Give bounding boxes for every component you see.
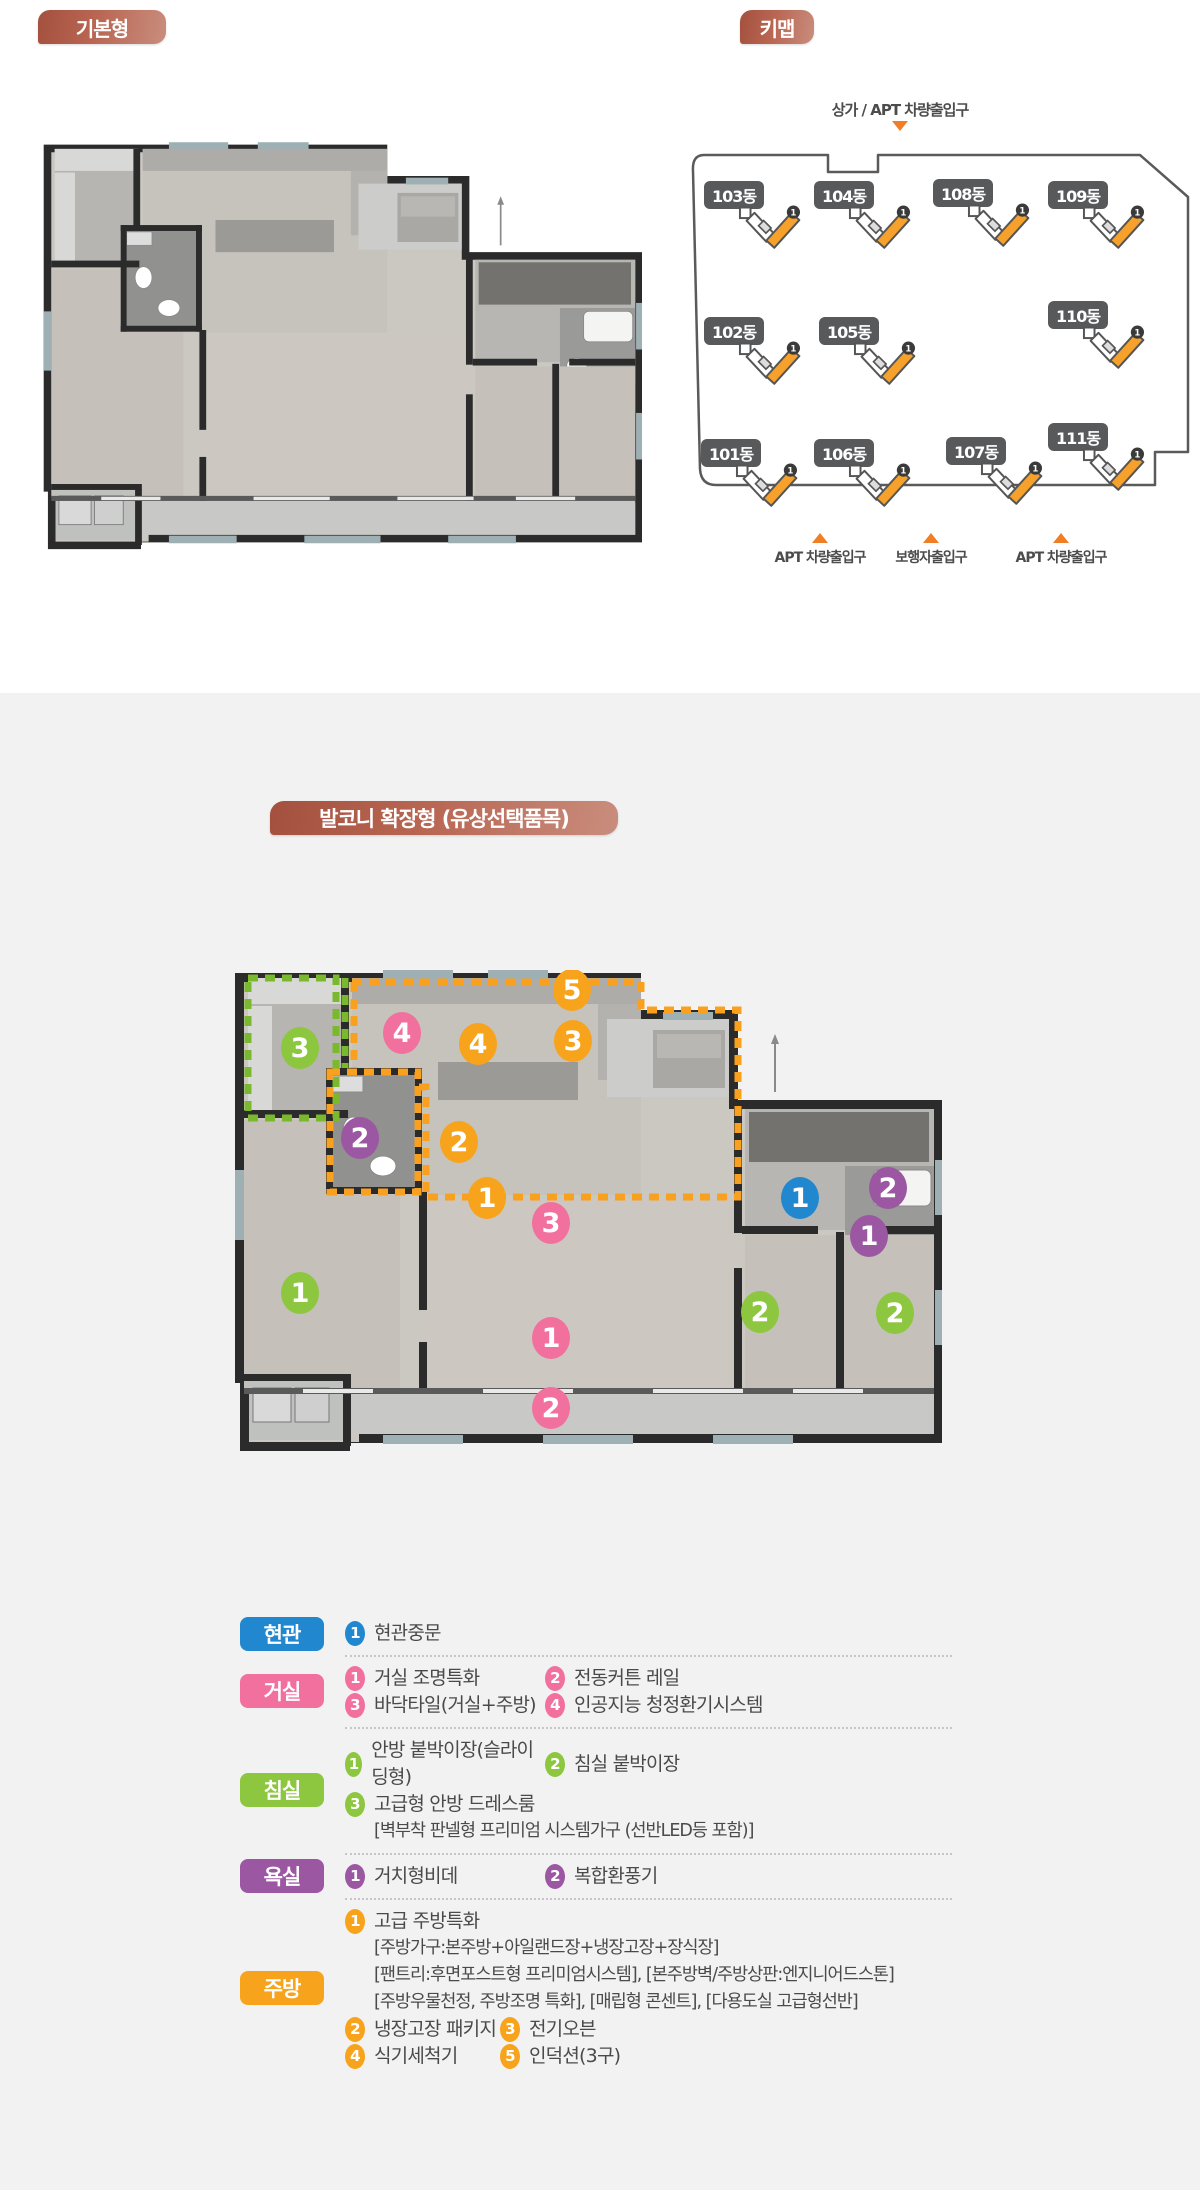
option-marker-pink-1: 1 (532, 1317, 570, 1359)
item-number-icon: 2 (545, 1864, 565, 1889)
basic-floor-plan (42, 142, 642, 555)
basic-floor-plan-drawing (42, 142, 642, 551)
svg-text:2: 2 (542, 1393, 561, 1424)
svg-text:1: 1 (542, 1323, 561, 1354)
legend-note: [주방가구:본주방+아일랜드장+냉장고장+장식장] (345, 1935, 718, 1962)
gate-arrow-up-icon (812, 533, 828, 543)
item-number-icon: 1 (345, 1666, 365, 1691)
category-badge-hyeongwan: 현관 (240, 1617, 324, 1651)
option-marker-pink-2: 2 (532, 1387, 570, 1429)
legend-section-chimsil: 침실1안방 붙박이장(슬라이딩형)2침실 붙박이장3고급형 안방 드레스룸[벽부… (240, 1727, 952, 1853)
item-number-icon: 3 (345, 1792, 365, 1817)
svg-text:4: 4 (393, 1018, 412, 1049)
building-106동: 106동 (814, 439, 924, 529)
gate-arrow-up-icon (923, 533, 939, 543)
svg-text:1: 1 (791, 1183, 810, 1214)
building-shape-icon (1080, 193, 1146, 259)
legend-item: 2복합환풍기 (545, 1863, 657, 1890)
item-text: 복합환풍기 (574, 1863, 657, 1890)
building-shape-icon (965, 191, 1031, 257)
option-marker-green-2: 2 (876, 1292, 914, 1334)
legend-note: [팬트리:후면포스트형 프리미엄시스템], [본주방벽/주방상판:엔지니어드스톤… (345, 1962, 894, 1989)
building-shape-icon (736, 193, 802, 259)
item-number-icon: 1 (345, 1864, 365, 1889)
item-text: 바닥타일(거실+주방) (374, 1692, 536, 1719)
item-number-icon: 4 (345, 2044, 365, 2069)
gate-arrow-up-icon (1053, 533, 1069, 543)
legend-item: 1현관중문 (345, 1620, 441, 1647)
building-104동: 104동 (814, 181, 924, 271)
building-shape-icon (1080, 313, 1146, 379)
legend-item: 4식기세척기 (345, 2043, 500, 2070)
legend-item: 1거실 조명특화 (345, 1665, 545, 1692)
option-marker-purple-2: 2 (341, 1117, 379, 1159)
option-marker-green-2: 2 (741, 1291, 779, 1333)
item-number-icon: 2 (545, 1752, 565, 1777)
building-111동: 111동 (1048, 423, 1158, 513)
legend-section-geosil: 거실1거실 조명특화2전동커튼 레일3바닥타일(거실+주방)4인공지능 청정환기… (240, 1655, 952, 1727)
legend-item: 5인덕션(3구) (500, 2043, 620, 2070)
item-number-icon: 1 (345, 1752, 362, 1777)
legend-item: 2침실 붙박이장 (545, 1751, 679, 1778)
legend-item: 2냉장고장 패키지 (345, 2016, 500, 2043)
item-text: 고급형 안방 드레스룸 (374, 1791, 535, 1818)
svg-text:2: 2 (751, 1297, 770, 1328)
building-shape-icon (846, 451, 912, 517)
svg-text:1: 1 (478, 1183, 497, 1214)
svg-text:5: 5 (563, 975, 582, 1006)
site-keymap: 상가 / APT 차량출입구 103동104동108동109동102동105동1… (688, 95, 1192, 573)
item-text: 거치형비데 (374, 1863, 457, 1890)
options-legend: 현관1현관중문거실1거실 조명특화2전동커튼 레일3바닥타일(거실+주방)4인공… (240, 1612, 952, 2078)
legend-item: 3고급형 안방 드레스룸 (345, 1791, 535, 1818)
building-shape-icon (1080, 435, 1146, 501)
building-shape-icon (733, 451, 799, 517)
item-text: 침실 붙박이장 (574, 1751, 679, 1778)
svg-text:4: 4 (469, 1029, 488, 1060)
item-number-icon: 3 (345, 1693, 365, 1718)
category-badge-yoksil: 욕실 (240, 1859, 324, 1893)
legend-note: [벽부착 판넬형 프리미엄 시스템가구 (선반LED등 포함)] (345, 1818, 753, 1845)
svg-text:2: 2 (351, 1123, 370, 1154)
option-marker-orange-2: 2 (440, 1121, 478, 1163)
building-103동: 103동 (704, 181, 814, 271)
category-badge-jubang: 주방 (240, 1971, 324, 2005)
svg-text:3: 3 (564, 1026, 583, 1057)
basic-type-badge: 기본형 (38, 10, 166, 44)
legend-item: 3바닥타일(거실+주방) (345, 1692, 545, 1719)
svg-text:2: 2 (879, 1173, 898, 1204)
building-110동: 110동 (1048, 301, 1158, 391)
legend-item: 1거치형비데 (345, 1863, 545, 1890)
item-number-icon: 1 (345, 1621, 365, 1646)
option-marker-orange-4: 4 (459, 1023, 497, 1065)
option-marker-orange-5: 5 (553, 970, 591, 1011)
item-text: 거실 조명특화 (374, 1665, 479, 1692)
svg-text:2: 2 (886, 1298, 905, 1329)
item-text: 인덕션(3구) (529, 2043, 620, 2070)
svg-text:3: 3 (291, 1033, 310, 1064)
building-105동: 105동 (819, 317, 929, 407)
legend-section-yoksil: 욕실1거치형비데2복합환풍기 (240, 1853, 952, 1898)
building-shape-icon (736, 329, 802, 395)
legend-item: 1고급 주방특화 (345, 1908, 479, 1935)
option-marker-pink-3: 3 (532, 1202, 570, 1244)
extension-floor-plan-drawing: 54433221312112212 (233, 970, 942, 1453)
building-107동: 107동 (946, 437, 1056, 527)
item-text: 인공지능 청정환기시스템 (574, 1692, 763, 1719)
gate-label: APT 차량출입구 (991, 547, 1131, 567)
building-shape-icon (851, 329, 917, 395)
item-text: 현관중문 (374, 1620, 441, 1647)
building-102동: 102동 (704, 317, 814, 407)
option-marker-pink-4: 4 (383, 1012, 421, 1054)
legend-section-hyeongwan: 현관1현관중문 (240, 1612, 952, 1655)
svg-text:3: 3 (542, 1208, 561, 1239)
legend-item: 4인공지능 청정환기시스템 (545, 1692, 763, 1719)
legend-item: 1안방 붙박이장(슬라이딩형) (345, 1737, 545, 1791)
option-marker-purple-2: 2 (869, 1167, 907, 1209)
svg-text:2: 2 (450, 1127, 469, 1158)
svg-text:1: 1 (291, 1278, 310, 1309)
item-text: 식기세척기 (374, 2043, 457, 2070)
item-text: 전기오븐 (529, 2016, 596, 2043)
item-number-icon: 2 (345, 2017, 365, 2042)
balcony-extension-badge: 발코니 확장형 (유상선택품목) (270, 801, 618, 835)
building-shape-icon (978, 449, 1044, 515)
building-shape-icon (846, 193, 912, 259)
item-number-icon: 3 (500, 2017, 520, 2042)
item-number-icon: 5 (500, 2044, 520, 2069)
option-marker-purple-1: 1 (850, 1215, 888, 1257)
legend-item: 2전동커튼 레일 (545, 1665, 679, 1692)
item-text: 안방 붙박이장(슬라이딩형) (371, 1737, 545, 1791)
option-marker-green-1: 1 (281, 1272, 319, 1314)
gate-label: 보행자출입구 (861, 547, 1001, 567)
item-text: 고급 주방특화 (374, 1908, 479, 1935)
category-badge-chimsil: 침실 (240, 1773, 324, 1807)
option-marker-blue-1: 1 (781, 1177, 819, 1219)
building-109동: 109동 (1048, 181, 1158, 271)
category-badge-geosil: 거실 (240, 1674, 324, 1708)
option-marker-orange-1: 1 (468, 1177, 506, 1219)
item-number-icon: 2 (545, 1666, 565, 1691)
building-108동: 108동 (933, 179, 1043, 269)
legend-note: [주방우물천정, 주방조명 특화], [매립형 콘센트], [다용도실 고급형선… (345, 1989, 858, 2016)
item-number-icon: 4 (545, 1693, 565, 1718)
balcony-extension-floor-plan: 54433221312112212 (233, 970, 942, 1457)
building-101동: 101동 (701, 439, 811, 529)
option-marker-orange-3: 3 (554, 1020, 592, 1062)
item-text: 냉장고장 패키지 (374, 2016, 496, 2043)
legend-section-jubang: 주방1고급 주방특화[주방가구:본주방+아일랜드장+냉장고장+장식장][팬트리:… (240, 1898, 952, 2078)
item-text: 전동커튼 레일 (574, 1665, 679, 1692)
keymap-badge: 키맵 (740, 10, 814, 44)
svg-text:1: 1 (860, 1221, 879, 1252)
item-number-icon: 1 (345, 1909, 365, 1934)
option-marker-green-3: 3 (281, 1027, 319, 1069)
legend-item: 3전기오븐 (500, 2016, 596, 2043)
